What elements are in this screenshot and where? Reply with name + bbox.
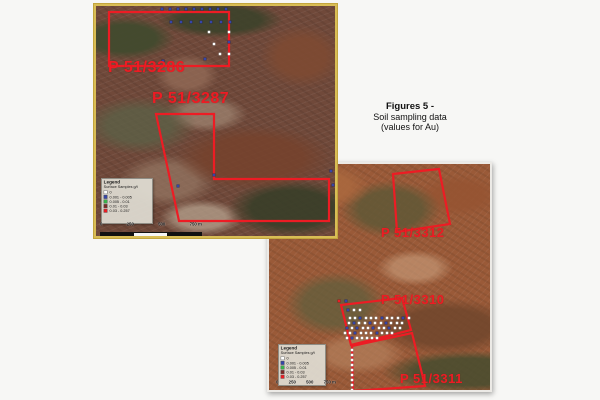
scale-tick: 250 [289,380,296,384]
sample-point [375,317,378,320]
tenement-outline [393,169,450,232]
legend-title: Legend [281,346,327,350]
sample-point [370,317,373,320]
sample-point [201,8,204,11]
sample-point [354,332,357,335]
sample-point [358,322,361,325]
sample-point [380,322,383,325]
scale-bar-rule [100,232,202,238]
sample-point [347,309,350,312]
sample-point [362,327,365,330]
tenement-outline [156,114,329,221]
sample-point [381,332,384,335]
scale-bar-rule [276,390,336,392]
legend-marker [104,204,108,208]
tenement-label: P 51/3310 [381,292,445,307]
tenement-label: P 51/3286 [108,59,185,77]
sample-point [385,322,388,325]
sample-point [219,53,222,56]
sample-point [364,322,367,325]
sample-point [381,317,384,320]
tenement-outline [109,12,229,66]
sample-point [208,31,211,34]
legend-item-label: 0.01 - 0.03 [110,204,128,208]
sample-point [228,41,231,44]
figure-canvas: P 51/3312 P 51/3310 P 51/3311 Legend Sur… [0,0,600,400]
sample-point [204,58,207,61]
legend-subtitle: Surface Samples g/t [281,351,327,355]
sample-point [330,170,333,173]
legend-marker [104,195,108,199]
legend-marker [281,366,285,370]
legend: Legend Surface Samples g/t 0 0.001 - 0.0… [101,178,153,224]
sample-point [190,21,193,24]
figure-caption-line: (values for Au) [356,122,464,132]
legend-marker [104,209,108,213]
sample-point [397,317,400,320]
scale-tick: 500 [306,380,313,384]
sample-point [386,317,389,320]
sample-point [193,8,196,11]
sample-point [374,322,377,325]
sample-point [376,337,379,340]
sample-point [386,332,389,335]
sample-point [351,337,354,340]
sample-point [396,322,399,325]
sample-point [378,327,381,330]
sample-point [346,327,349,330]
sample-point [351,374,354,377]
legend-marker [281,370,285,374]
sample-point [351,349,354,352]
sample-point [353,322,356,325]
legend-marker [104,190,108,194]
sample-point [180,21,183,24]
sample-point [399,327,402,330]
sample-point [351,364,354,367]
sample-point [228,53,231,56]
scale-tick: 750 m [190,222,202,226]
sample-point [169,8,172,11]
sample-point [356,337,359,340]
sample-point [200,21,203,24]
sample-point [360,332,363,335]
sample-point [349,317,352,320]
sample-point [177,185,180,188]
sample-point [351,379,354,382]
figure-caption-title: Figures 5 - [356,101,464,112]
legend-item-label: 0.001 - 0.005 [287,361,309,365]
sample-point [365,332,368,335]
figure-caption-line: Soil sampling data [356,112,464,122]
legend-marker [281,356,285,360]
sample-point [361,337,364,340]
sample-point [354,317,357,320]
sample-point [390,322,393,325]
sample-point [401,322,404,325]
sample-point [170,21,173,24]
sample-point [210,21,213,24]
sample-point [353,309,356,312]
sample-point [391,317,394,320]
sample-point [383,327,386,330]
sample-point [391,332,394,335]
sample-point [369,322,372,325]
sample-point [351,384,354,387]
sample-point [225,8,228,11]
sample-point [371,337,374,340]
legend-title: Legend [104,180,154,184]
scale-tick: 0 [100,222,102,226]
tenement-label: P 51/3311 [400,371,463,386]
scale-tick: 750 m [324,380,336,384]
sample-point [209,8,212,11]
legend-item-label: 0.03 - 0.257 [287,375,307,379]
legend-marker [281,361,285,365]
tenement-label: P 51/3312 [381,225,445,240]
sample-point [408,317,411,320]
sample-point [213,43,216,46]
sample-point [185,8,188,11]
scale-bar: 0 250 500 750 m [100,222,202,238]
legend-item-label: 0.001 - 0.005 [110,195,132,199]
sample-point [351,327,354,330]
sample-point [220,21,223,24]
legend-item-label: 0.01 - 0.03 [287,370,305,374]
sample-point [351,359,354,362]
sample-point [402,317,405,320]
legend-item-label: 0 [287,356,289,360]
sample-point [217,8,220,11]
sample-point [356,327,359,330]
sample-point [359,317,362,320]
sample-point [338,300,341,303]
sample-point [351,369,354,372]
legend-item-label: 0 [110,190,112,194]
sample-point [366,337,369,340]
sample-point [348,322,351,325]
sample-point [332,184,335,187]
sample-point [365,317,368,320]
sample-point [349,332,352,335]
sample-point [359,309,362,312]
sample-point [228,31,231,34]
sample-point [388,327,391,330]
legend-marker [281,375,285,379]
legend-item-label: 0.005 - 0.01 [110,199,130,203]
sample-point [367,327,370,330]
sample-point [372,327,375,330]
scale-bar: 0 250 500 750 m [276,380,336,392]
sample-point [394,327,397,330]
sample-point [351,389,354,390]
sample-point [351,354,354,357]
legend-item-label: 0.005 - 0.01 [287,365,307,369]
scale-tick: 250 [127,222,134,226]
tenement-label: P 51/3287 [152,90,229,108]
scale-tick: 0 [276,380,278,384]
legend-marker [104,200,108,204]
legend-item-label: 0.03 - 0.257 [110,209,130,213]
sample-point [229,21,232,24]
sample-point [213,174,216,177]
figure-caption: Figures 5 - Soil sampling data (values f… [356,101,464,132]
scale-tick: 500 [158,222,165,226]
sample-point [370,332,373,335]
sample-point [346,337,349,340]
north-map: P 51/3286 P 51/3287 Legend Surface Sampl… [94,4,337,238]
sample-point [376,332,379,335]
sample-point [161,8,164,11]
sample-point [344,332,347,335]
legend-subtitle: Surface Samples g/t [104,185,154,189]
sample-point [177,8,180,11]
sample-point [345,300,348,303]
